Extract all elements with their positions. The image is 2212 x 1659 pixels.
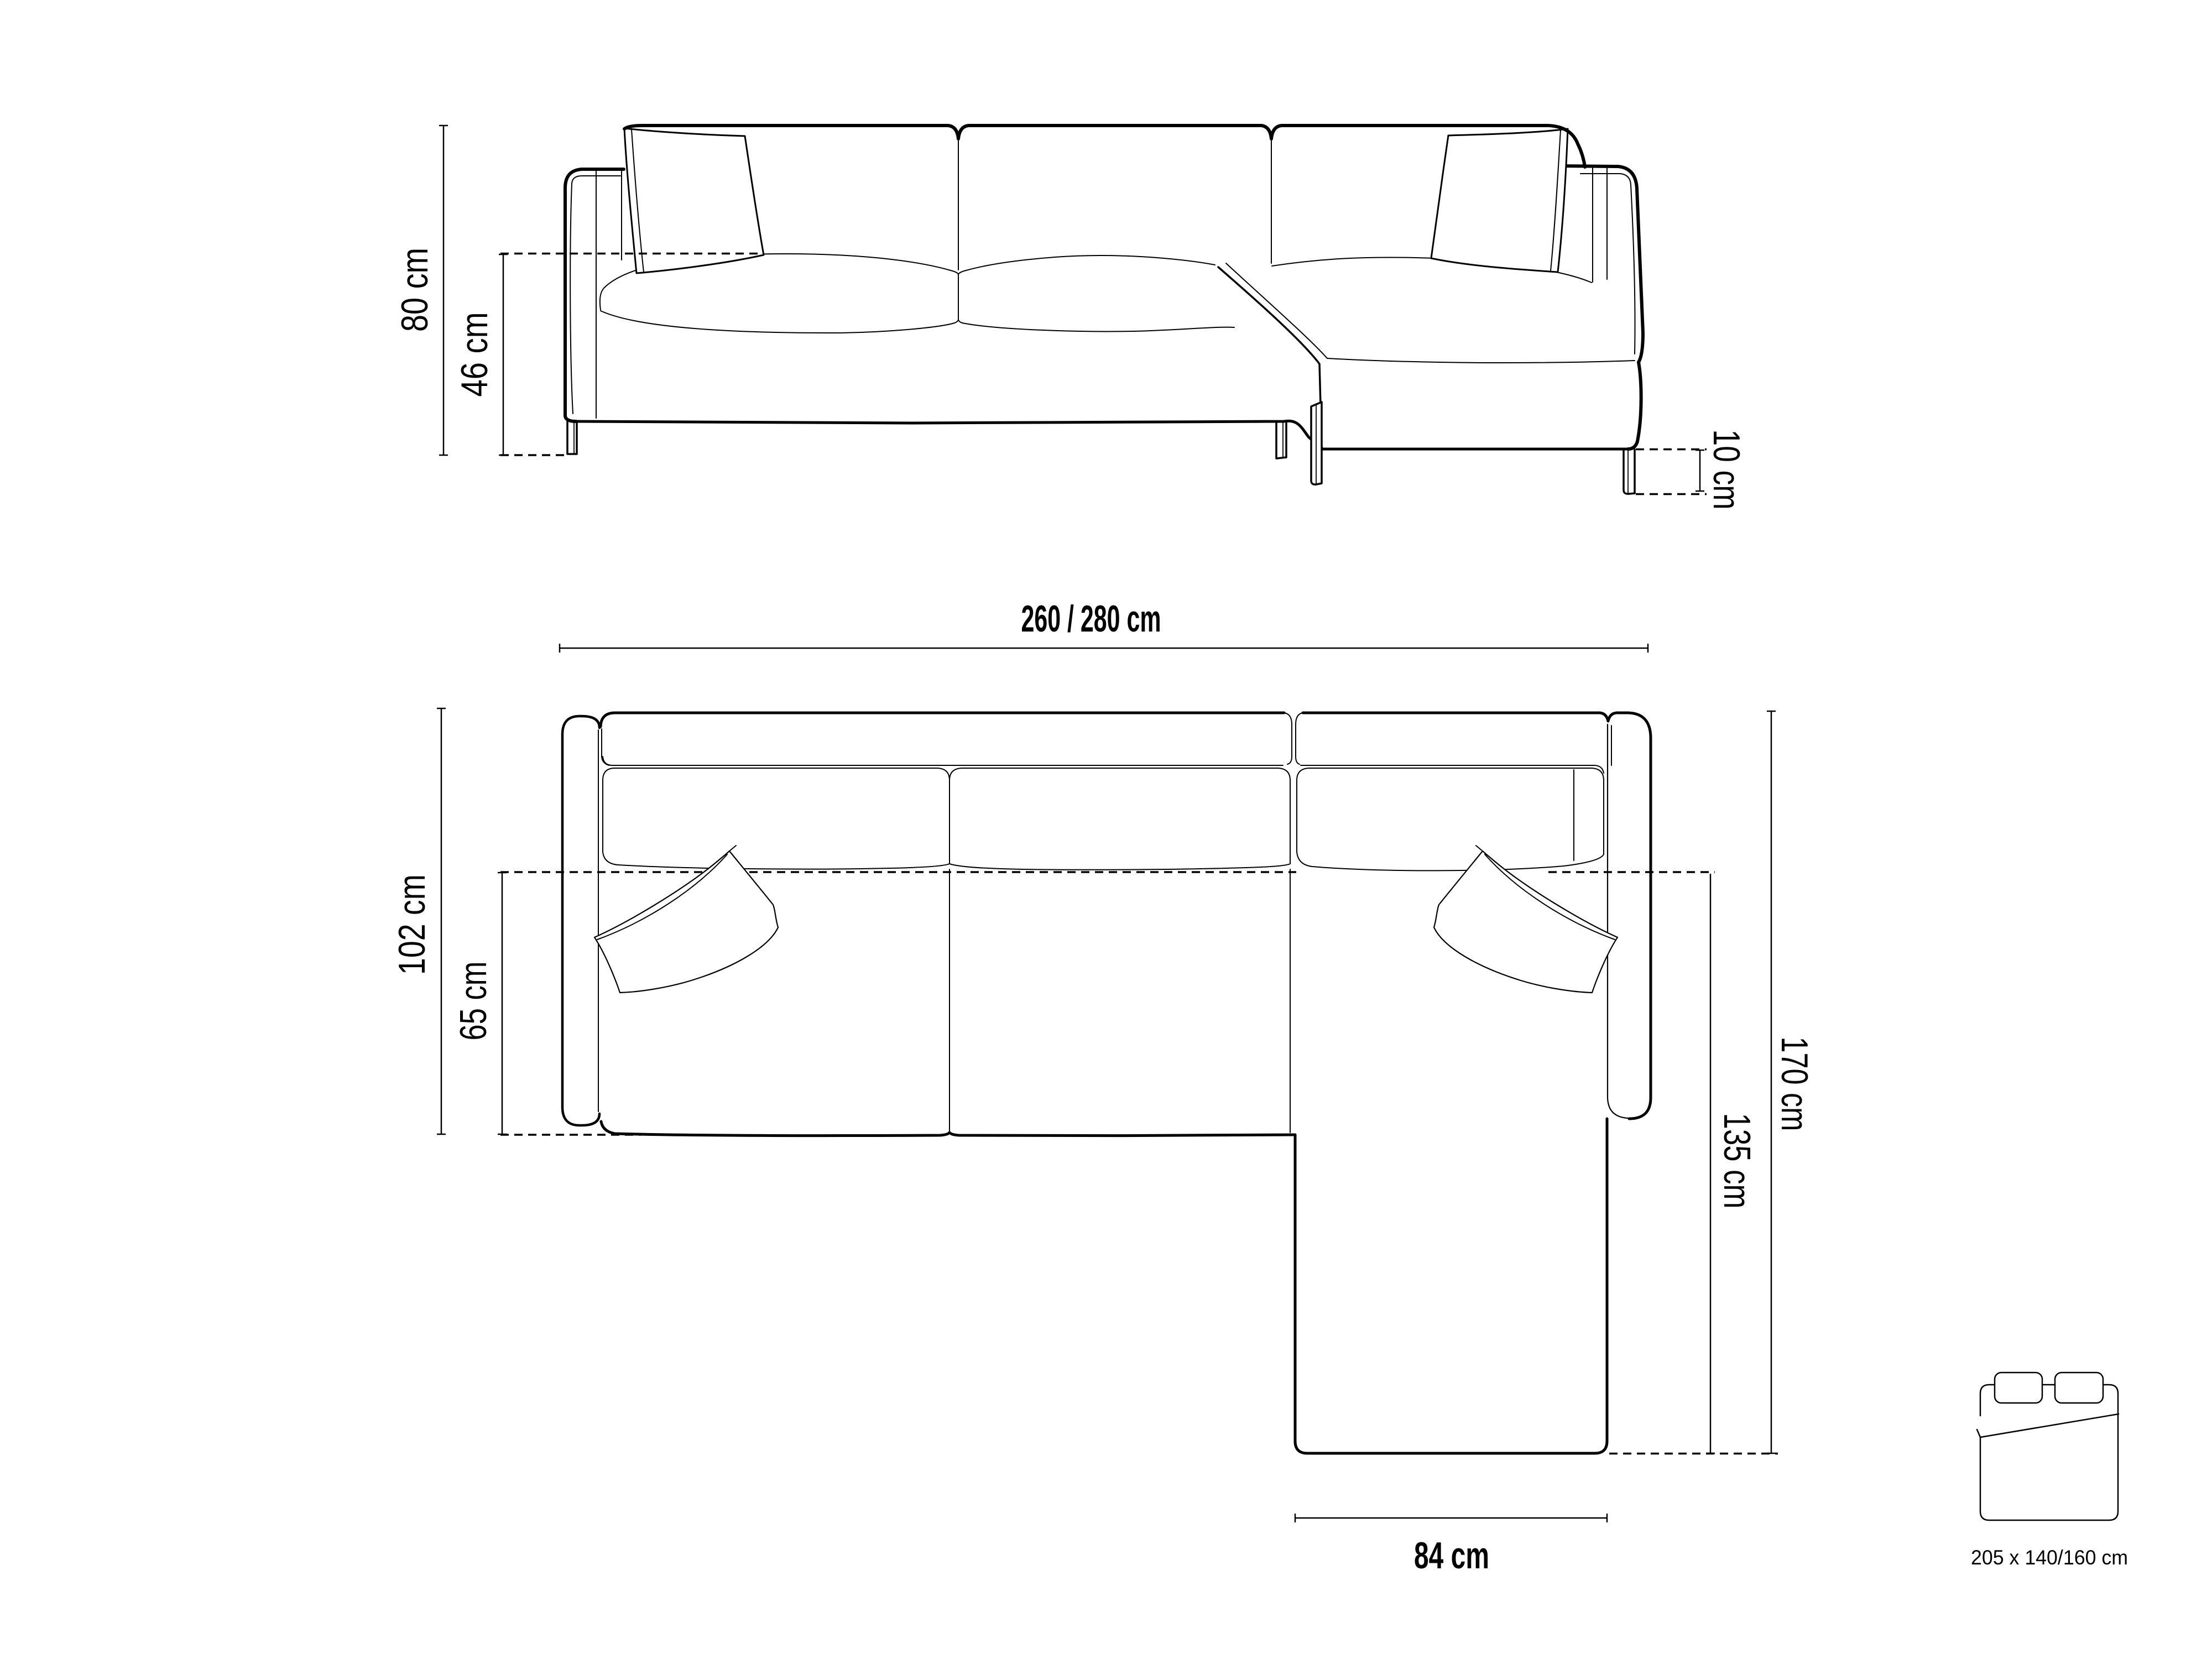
svg-text:260 / 280 cm: 260 / 280 cm [1021, 598, 1161, 640]
svg-text:170 cm: 170 cm [1773, 1037, 1815, 1131]
svg-text:10 cm: 10 cm [1705, 430, 1747, 510]
svg-text:135 cm: 135 cm [1716, 1113, 1758, 1209]
svg-text:84 cm: 84 cm [1414, 1535, 1489, 1577]
svg-text:205 x 140/160 cm: 205 x 140/160 cm [1971, 1546, 2128, 1569]
svg-text:65 cm: 65 cm [452, 962, 494, 1041]
svg-text:46 cm: 46 cm [453, 312, 495, 397]
svg-text:102 cm: 102 cm [391, 874, 433, 975]
svg-text:80 cm: 80 cm [394, 248, 436, 332]
